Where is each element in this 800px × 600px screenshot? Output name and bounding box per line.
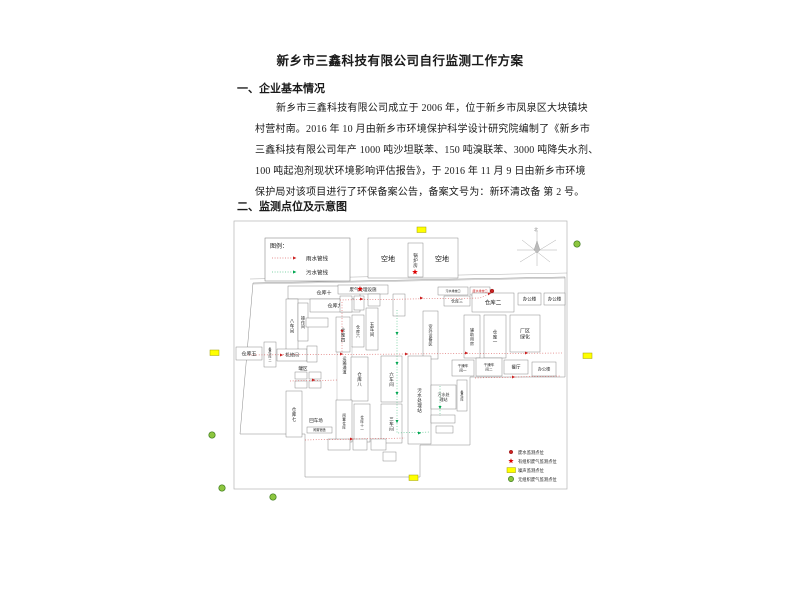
building-label: 锅炉房 <box>413 252 418 269</box>
building-label: 餐厅 <box>512 364 521 371</box>
paragraph-line: 保护局对该项目进行了环保备案公告，备案文号为：新环清改备 第 2 号。 <box>255 183 585 198</box>
building-label: 污水处理站 <box>417 387 422 414</box>
building-label: 仓库六 <box>356 323 360 338</box>
paragraph-line: 100 吨起泡剂现状环境影响评估报告》，于 2016 年 11 月 9 日由新乡… <box>255 162 586 177</box>
area-label: 空地 <box>435 254 449 263</box>
building-box <box>307 346 317 362</box>
building-box <box>371 439 386 450</box>
building-box <box>309 372 321 379</box>
fugitive-gas-monitor-point <box>574 241 580 247</box>
building-label: 操作间 <box>301 314 305 329</box>
building-box <box>368 294 380 306</box>
section2-heading: 二、监测点位及示意图 <box>237 198 347 214</box>
area-label: 运输通道 <box>343 355 347 374</box>
building-label: 六车间 <box>389 371 394 388</box>
point-legend-label: 有组织废气监测点位 <box>518 458 557 465</box>
building-label: 五车间 <box>370 322 375 338</box>
noise-monitor-point <box>583 353 592 359</box>
building-box <box>309 381 321 388</box>
site-plan-diagram: 锅炉房仓库十仓库九八车间操作间废气处理设施污水排放口废水排放口仓库三仓库二办公楼… <box>190 220 620 530</box>
building-box <box>295 381 307 388</box>
building-box <box>340 296 352 312</box>
page-title: 新乡市三鑫科技有限公司自行监测工作方案 <box>0 50 800 69</box>
noise-monitor-point <box>210 350 219 356</box>
building-label: 仓库七 <box>292 406 297 422</box>
noise-monitor-point <box>409 475 418 481</box>
pipe-legend-title: 图例： <box>270 242 288 250</box>
fugitive-gas-monitor-point <box>209 432 215 438</box>
building-label: 办公楼 <box>523 296 537 303</box>
building-label: 辅助用房 <box>470 327 474 346</box>
building-box <box>353 439 367 450</box>
building-box <box>328 439 350 450</box>
legend-yellow-rect <box>507 468 516 473</box>
building-label: 闲置宿舍 <box>313 427 327 432</box>
paragraph-line: 村营村南。2016 年 10 月由新乡市环境保护科学设计研究院编制了《新乡市 <box>255 120 590 135</box>
building-label: 办公楼 <box>538 365 551 372</box>
building-label: 仓库八 <box>357 371 362 387</box>
building-box <box>383 452 396 461</box>
building-box <box>431 415 455 423</box>
section1-heading: 一、企业基本情况 <box>237 80 325 96</box>
pipe-legend-label: 雨水管线 <box>306 254 329 262</box>
building-label: 三车间 <box>389 416 394 432</box>
compass-north-label: 北 <box>534 226 538 232</box>
legend-green-circle <box>508 476 513 481</box>
point-legend-label: 废水监测点位 <box>518 449 544 456</box>
building-label: 仓库三 <box>451 297 463 303</box>
building-label: 八车间 <box>290 318 295 334</box>
building-box <box>393 294 405 316</box>
point-legend-label: 噪声监测点位 <box>518 467 544 474</box>
fugitive-gas-monitor-point <box>270 494 276 500</box>
document-page: 新乡市三鑫科技有限公司自行监测工作方案 一、企业基本情况 新乡市三鑫科技有限公司… <box>0 0 800 600</box>
building-label: 仓库二 <box>485 298 502 306</box>
building-label: 闲置仓库 <box>342 413 346 430</box>
area-label: 空地 <box>381 254 395 263</box>
building-box <box>436 426 453 433</box>
building-label: 室外设备区 <box>429 323 433 347</box>
fugitive-gas-monitor-point <box>219 485 225 491</box>
area-label: 回车场 <box>309 417 323 424</box>
building-label: 仓库四 <box>341 326 346 342</box>
building-box <box>306 318 328 327</box>
area-label: 罐区 <box>299 365 308 372</box>
building-label: 污水排放口 <box>445 288 460 293</box>
building-box <box>295 372 307 379</box>
building-label: 机修间 <box>285 352 299 359</box>
building-label: 废气处理设施 <box>350 286 377 293</box>
pipe-legend-label: 污水管线 <box>306 268 329 276</box>
building-label: 仓库十 <box>316 289 331 296</box>
paragraph-line: 三鑫科技有限公司年产 1000 吨沙坦联苯、150 吨溴联苯、3000 吨降失水… <box>255 141 598 156</box>
building-label: 仓库五 <box>241 350 256 357</box>
building-label: 仓库十一 <box>360 415 364 432</box>
building-label: 废水排放口 <box>472 288 487 293</box>
point-legend-label: 无组织废气监测点位 <box>518 476 557 483</box>
paragraph-line: 新乡市三鑫科技有限公司成立于 2006 年，位于新乡市凤泉区大块镇块 <box>276 99 588 114</box>
building-box <box>354 296 364 310</box>
noise-monitor-point <box>417 227 426 233</box>
wastewater-monitor-point <box>490 289 494 293</box>
building-label: 仓库一 <box>493 328 498 344</box>
legend-red-dot <box>509 450 513 454</box>
building-label: 办公楼 <box>548 296 562 303</box>
